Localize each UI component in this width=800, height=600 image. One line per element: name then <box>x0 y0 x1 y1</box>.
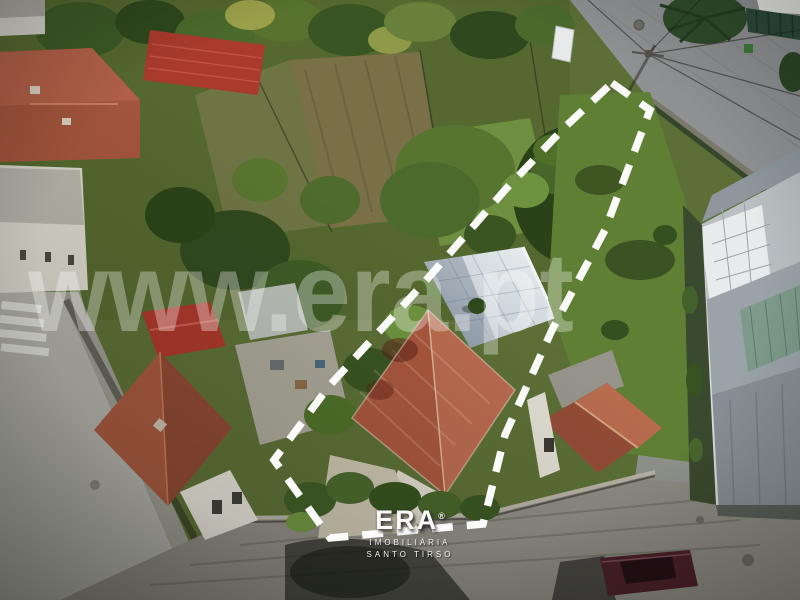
logo-line-santo-tirso: SANTO TIRSO <box>330 550 490 560</box>
logo-line-imobiliaria: IMOBILIÁRIA <box>330 538 490 548</box>
aerial-photo: www.era.pt ERA® IMOBILIÁRIA SANTO TIRSO <box>0 0 800 600</box>
era-wordmark: ERA® <box>330 507 490 534</box>
era-logo: ERA® IMOBILIÁRIA SANTO TIRSO <box>330 507 490 560</box>
era-brand-text: ERA <box>375 505 438 535</box>
watermark-text: www.era.pt <box>28 228 764 357</box>
registered-mark: ® <box>438 511 445 521</box>
